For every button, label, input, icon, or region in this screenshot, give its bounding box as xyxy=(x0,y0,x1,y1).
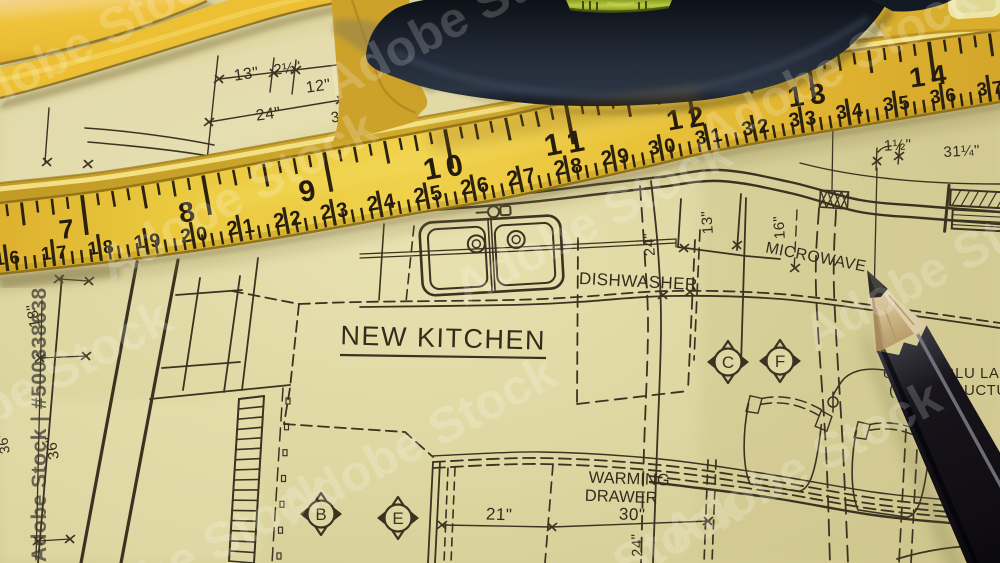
svg-text:31¼": 31¼" xyxy=(943,142,980,161)
svg-text:21": 21" xyxy=(486,505,513,525)
svg-text:13": 13" xyxy=(233,64,260,84)
svg-text:Adobe Stock | #500338638: Adobe Stock | #500338638 xyxy=(28,287,51,562)
svg-text:13": 13" xyxy=(698,210,717,235)
svg-text:E: E xyxy=(392,509,403,528)
svg-text:24": 24" xyxy=(640,232,659,257)
svg-text:24": 24" xyxy=(255,104,282,124)
svg-text:F: F xyxy=(775,352,785,371)
svg-text:WARMING: WARMING xyxy=(588,469,670,490)
svg-text:C: C xyxy=(722,353,734,372)
svg-text:NEW KITCHEN: NEW KITCHEN xyxy=(340,320,546,355)
svg-text:1½": 1½" xyxy=(883,136,912,154)
svg-text:16": 16" xyxy=(770,215,789,240)
